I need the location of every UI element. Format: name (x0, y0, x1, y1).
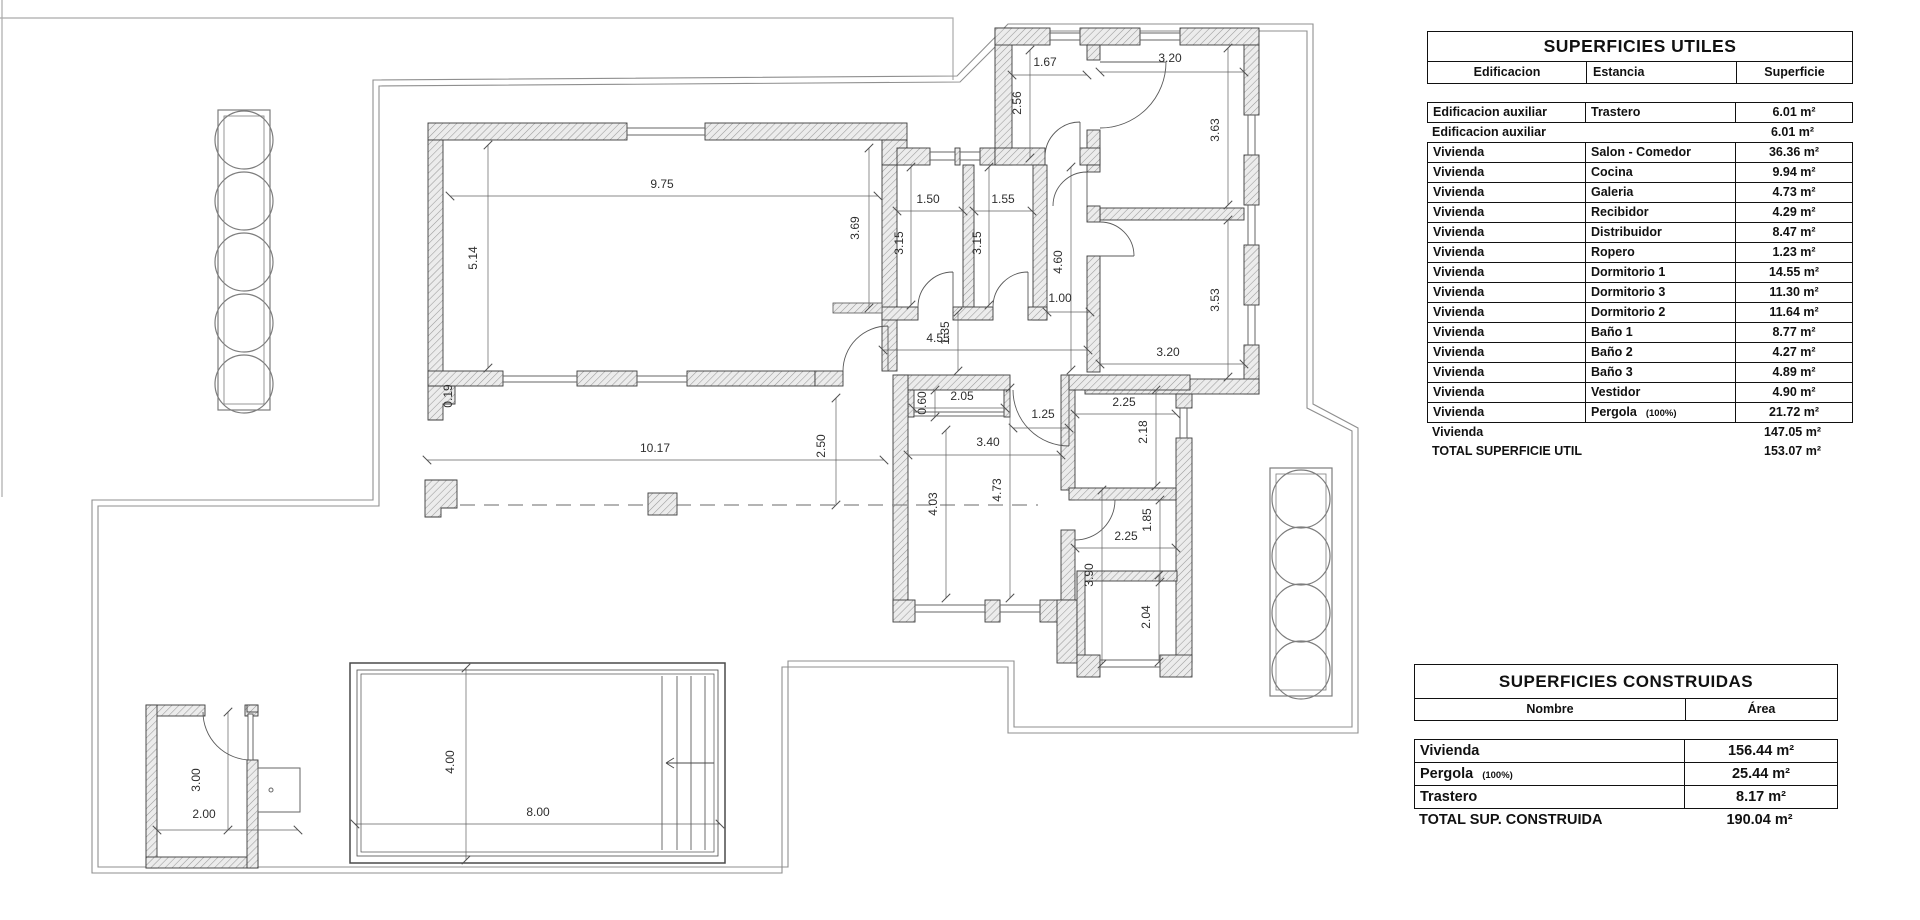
superficies-construidas-table: SUPERFICIES CONSTRUIDAS Nombre Área Vivi… (1414, 664, 1838, 831)
dimension-label: 0.19 (441, 384, 455, 408)
dimension-label: 3.15 (970, 231, 984, 255)
table-cell: 4.90 m² (1735, 383, 1852, 402)
dimension-layer: 1.672.563.203.639.755.140.191.501.553.69… (153, 44, 1248, 864)
column-header: Superficie (1736, 62, 1852, 83)
dimension-label: 2.25 (1112, 395, 1136, 409)
dimension-label: 3.69 (848, 216, 862, 240)
table-cell: 14.55 m² (1735, 263, 1852, 282)
table-row: ViviendaDistribuidor8.47 m² (1427, 222, 1853, 243)
table-cell: 190.04 m² (1683, 809, 1836, 831)
table-cell: Recibidor (1585, 203, 1735, 222)
planter-left (215, 110, 273, 413)
table-cell: 8.47 m² (1735, 223, 1852, 242)
pool (350, 663, 725, 863)
table-cell: Baño 1 (1585, 323, 1735, 342)
dimension-label: 9.75 (650, 177, 674, 191)
table-cell: Cocina (1585, 163, 1735, 182)
table-cell: 4.89 m² (1735, 363, 1852, 382)
dimension-label: 2.25 (1114, 529, 1138, 543)
dimension-label: 0.60 (915, 391, 929, 415)
table-cell: Vivienda (1428, 163, 1585, 182)
table-cell: 6.01 m² (1735, 103, 1852, 122)
table-row: ViviendaBaño 34.89 m² (1427, 362, 1853, 383)
table-row: ViviendaRecibidor4.29 m² (1427, 202, 1853, 223)
table-cell (1584, 442, 1734, 461)
table-row: ViviendaBaño 24.27 m² (1427, 342, 1853, 363)
percent-note: (100%) (1646, 408, 1677, 419)
column-header: Área (1685, 699, 1837, 720)
table-title: SUPERFICIES CONSTRUIDAS (1414, 664, 1838, 699)
trastero-building (146, 705, 300, 868)
dimension-label: 1.85 (1140, 508, 1154, 532)
table-title: SUPERFICIES UTILES (1427, 31, 1853, 62)
dimension-label: 3.90 (1082, 563, 1096, 587)
dimension-label: 3.53 (1208, 288, 1222, 312)
table-cell: Pergola(100%) (1585, 403, 1735, 423)
dimension-label: 1.35 (938, 321, 952, 345)
dimension-label: 3.63 (1208, 118, 1222, 142)
table-cell: Dormitorio 1 (1585, 263, 1735, 282)
table-cell: Vivienda (1428, 403, 1585, 423)
table-row: ViviendaVestidor4.90 m² (1427, 382, 1853, 403)
dimension-label: 3.20 (1158, 51, 1182, 65)
table-body: Edificacion auxiliarTrastero6.01 m²Edifi… (1427, 102, 1853, 461)
ac-unit (258, 768, 300, 812)
table-cell: 11.64 m² (1735, 303, 1852, 322)
pool-arrow-icon (666, 758, 714, 768)
table-cell (1584, 423, 1734, 442)
column-header: Estancia (1586, 62, 1736, 83)
table-cell: Vivienda (1428, 143, 1585, 162)
building-walls (428, 28, 1259, 677)
dimension-label: 8.00 (526, 805, 550, 819)
table-cell: 6.01 m² (1734, 123, 1851, 142)
table-cell: Trastero (1415, 786, 1684, 808)
table-row: ViviendaCocina9.94 m² (1427, 162, 1853, 183)
dimension-label: 3.20 (1156, 345, 1180, 359)
table-cell: Baño 2 (1585, 343, 1735, 362)
table-cell: 11.30 m² (1735, 283, 1852, 302)
table-cell: Vestidor (1585, 383, 1735, 402)
tree-icon (1272, 470, 1330, 699)
table-cell: Vivienda (1428, 243, 1585, 262)
table-cell: 9.94 m² (1735, 163, 1852, 182)
percent-note: (100%) (1482, 770, 1513, 781)
table-row: ViviendaPergola(100%)21.72 m² (1427, 402, 1853, 423)
table-cell: Vivienda (1428, 203, 1585, 222)
trastero-door-leaf (248, 714, 253, 760)
table-cell: Vivienda (1428, 303, 1585, 322)
table-cell: Distribuidor (1585, 223, 1735, 242)
table-cell: 4.29 m² (1735, 203, 1852, 222)
table-cell: 4.27 m² (1735, 343, 1852, 362)
dimension-label: 3.40 (976, 435, 1000, 449)
table-row: ViviendaDormitorio 114.55 m² (1427, 262, 1853, 283)
trastero-door-arc (203, 712, 251, 760)
table-cell: Salon - Comedor (1585, 143, 1735, 162)
table-cell: 156.44 m² (1684, 740, 1837, 762)
dimension-label: 5.14 (466, 246, 480, 270)
dimension-label: 2.50 (814, 434, 828, 458)
table-cell: Pergola(100%) (1415, 763, 1684, 787)
table-row: TOTAL SUPERFICIE UTIL153.07 m² (1427, 442, 1853, 461)
table-cell: Vivienda (1428, 183, 1585, 202)
table-row: ViviendaRopero1.23 m² (1427, 242, 1853, 263)
table-row: Trastero8.17 m² (1414, 785, 1838, 809)
table-body: Vivienda156.44 m²Pergola(100%)25.44 m²Tr… (1414, 739, 1838, 831)
dimension-label: 1.55 (991, 192, 1015, 206)
table-cell: 147.05 m² (1734, 423, 1851, 442)
dimension-label: 4.03 (926, 492, 940, 516)
table-row: Edificacion auxiliar6.01 m² (1427, 123, 1853, 142)
table-cell: Edificacion auxiliar (1428, 103, 1585, 122)
table-cell: 21.72 m² (1735, 403, 1852, 423)
planter-right (1270, 468, 1332, 699)
table-cell: Vivienda (1428, 343, 1585, 362)
table-row: ViviendaGaleria4.73 m² (1427, 182, 1853, 203)
dimension-label: 1.50 (916, 192, 940, 206)
table-cell: Baño 3 (1585, 363, 1735, 382)
table-cell: Trastero (1585, 103, 1735, 122)
table-row: ViviendaSalon - Comedor36.36 m² (1427, 142, 1853, 163)
table-cell: 1.23 m² (1735, 243, 1852, 262)
dimension-label: 4.00 (443, 750, 457, 774)
floor-plan-page: { "tables": { "utiles": { "title": "SUPE… (0, 0, 1920, 920)
dimension-label: 2.18 (1136, 420, 1150, 444)
table-cell: Vivienda (1428, 283, 1585, 302)
table-cell: Vivienda (1415, 740, 1684, 762)
table-row: ViviendaDormitorio 211.64 m² (1427, 302, 1853, 323)
table-cell: 8.77 m² (1735, 323, 1852, 342)
dimension-label: 1.25 (1031, 407, 1055, 421)
table-cell: TOTAL SUPERFICIE UTIL (1427, 442, 1584, 461)
dimension-label: 4.60 (1051, 250, 1065, 274)
kitchen-counter (833, 303, 882, 313)
table-row: Pergola(100%)25.44 m² (1414, 762, 1838, 786)
table-cell: 4.73 m² (1735, 183, 1852, 202)
table-cell: Vivienda (1428, 263, 1585, 282)
table-row: ViviendaBaño 18.77 m² (1427, 322, 1853, 343)
dimension-label: 4.73 (990, 478, 1004, 502)
table-cell: Vivienda (1428, 363, 1585, 382)
table-cell: Ropero (1585, 243, 1735, 262)
table-row: Edificacion auxiliarTrastero6.01 m² (1427, 102, 1853, 123)
table-cell: Edificacion auxiliar (1427, 123, 1584, 142)
table-header-row: Nombre Área (1414, 699, 1838, 721)
dimension-label: 2.05 (950, 389, 974, 403)
table-cell: Vivienda (1427, 423, 1584, 442)
superficies-utiles-table: SUPERFICIES UTILES Edificacion Estancia … (1427, 31, 1853, 461)
dimension-label: 2.00 (192, 807, 216, 821)
table-header-row: Edificacion Estancia Superficie (1427, 62, 1853, 84)
column-header: Nombre (1415, 699, 1685, 720)
table-cell: Galeria (1585, 183, 1735, 202)
table-cell: 8.17 m² (1684, 786, 1837, 808)
table-cell: Vivienda (1428, 223, 1585, 242)
table-row: Vivienda147.05 m² (1427, 423, 1853, 442)
dimension-label: 3.00 (189, 768, 203, 792)
table-cell (1584, 123, 1734, 142)
table-cell: TOTAL SUP. CONSTRUIDA (1414, 809, 1683, 831)
dimension-label: 2.56 (1010, 91, 1024, 115)
table-row: Vivienda156.44 m² (1414, 739, 1838, 763)
dimension-label: 3.15 (892, 231, 906, 255)
dimension-label: 2.04 (1139, 605, 1153, 629)
table-cell: 25.44 m² (1684, 763, 1837, 787)
column-header: Edificacion (1428, 62, 1586, 83)
table-cell: Vivienda (1428, 383, 1585, 402)
table-cell: 36.36 m² (1735, 143, 1852, 162)
table-row: TOTAL SUP. CONSTRUIDA190.04 m² (1414, 809, 1838, 831)
table-cell: Dormitorio 3 (1585, 283, 1735, 302)
dimension-label: 10.17 (640, 441, 670, 455)
table-row: ViviendaDormitorio 311.30 m² (1427, 282, 1853, 303)
dimension-label: 1.67 (1033, 55, 1057, 69)
table-cell: Dormitorio 2 (1585, 303, 1735, 322)
dimension-label: 1.00 (1048, 291, 1072, 305)
table-cell: 153.07 m² (1734, 442, 1851, 461)
table-cell: Vivienda (1428, 323, 1585, 342)
